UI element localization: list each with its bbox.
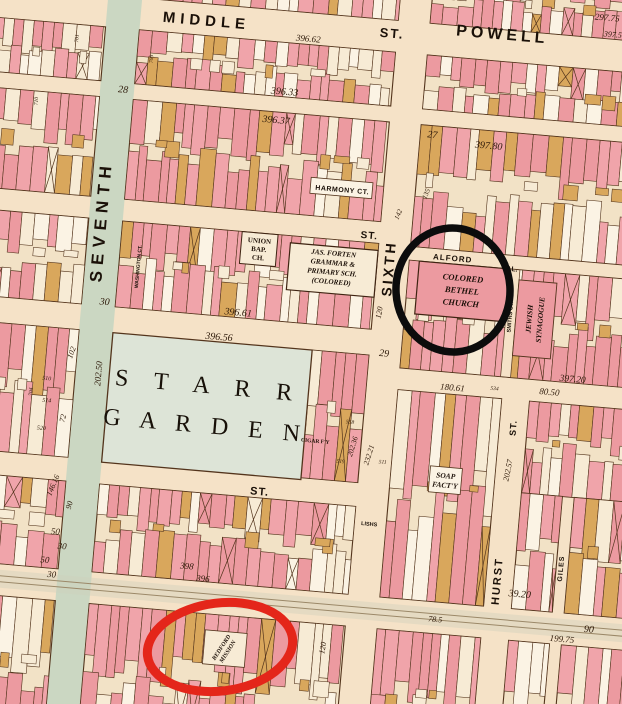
num-511-text: 511 [378, 459, 387, 466]
atlas-map-page: MIDDLEST.POWELLSEVENTHSIXTHHURSTST.ST.ST… [0, 0, 622, 704]
city-block [365, 629, 481, 704]
num-30-seventh-text: 30 [98, 296, 110, 308]
num-514-text: 514 [42, 397, 52, 405]
num-80-50-text: 80.50 [539, 386, 561, 398]
city-block [0, 86, 99, 196]
city-block [0, 319, 79, 457]
num-50-a-text: 50 [50, 526, 60, 537]
city-block [564, 498, 622, 620]
street-label-hurst-st-text: ST. [507, 419, 518, 436]
label-union-bap-line-3: CH. [252, 254, 265, 263]
num-396-text: 396 [195, 573, 211, 584]
num-534-text: 534 [490, 385, 499, 393]
num-39-20: 39.20 [507, 588, 531, 601]
num-710: 710 [33, 97, 40, 106]
street-label-st-mid-text: ST. [360, 230, 378, 242]
city-block [0, 17, 106, 81]
city-block [411, 125, 622, 269]
num-510: 510 [42, 376, 51, 383]
num-397-5: 397.5 [602, 29, 622, 40]
num-78-5: 78.5 [428, 614, 443, 624]
num-30-b: 30 [46, 569, 57, 580]
num-90-right-text: 90 [583, 624, 594, 636]
num-701-text: 701 [74, 34, 81, 43]
city-block [549, 645, 622, 704]
city-block [301, 350, 369, 482]
num-510-text: 510 [42, 376, 51, 383]
num-511: 511 [378, 459, 387, 466]
street-label-st-garden: ST. [250, 485, 270, 499]
num-39-20-text: 39.20 [507, 588, 531, 601]
synagogue-building [512, 280, 556, 359]
num-520-text: 520 [37, 425, 46, 432]
city-block [0, 590, 55, 704]
num-701: 701 [74, 34, 81, 43]
num-700-text: 700 [149, 54, 156, 63]
num-80-50: 80.50 [539, 386, 561, 398]
num-398-text: 398 [179, 560, 195, 571]
street-label-middle-st-text: ST. [379, 25, 405, 42]
num-30-a-text: 30 [56, 541, 67, 552]
num-396: 396 [195, 573, 211, 584]
atlas-map: MIDDLEST.POWELLSEVENTHSIXTHHURSTST.ST.ST… [0, 0, 622, 704]
city-block [522, 401, 622, 504]
num-29: 29 [379, 348, 390, 360]
city-block [380, 390, 502, 606]
num-519-text: 519 [336, 459, 345, 466]
num-28-text: 28 [118, 84, 129, 96]
num-90-right: 90 [583, 624, 594, 636]
num-30-b-text: 30 [46, 569, 57, 580]
num-700: 700 [149, 54, 156, 63]
num-534: 534 [490, 385, 499, 393]
num-50-a: 50 [50, 526, 60, 537]
num-558-text: 558 [346, 419, 355, 426]
num-78-5-text: 78.5 [428, 614, 443, 624]
num-30-seventh: 30 [98, 296, 110, 308]
num-30-a: 30 [56, 541, 67, 552]
num-558: 558 [346, 419, 355, 426]
num-520: 520 [37, 425, 46, 432]
num-704-text: 704 [27, 387, 35, 396]
num-704: 704 [27, 387, 35, 396]
num-398: 398 [179, 560, 195, 571]
street-label-st-garden-text: ST. [250, 485, 270, 499]
num-514: 514 [42, 397, 52, 405]
street-label-st-mid: ST. [360, 230, 378, 242]
num-50-b: 50 [40, 554, 50, 565]
street-label-hurst-st: ST. [507, 419, 518, 436]
num-28: 28 [118, 84, 129, 96]
num-397-5-text: 397.5 [602, 29, 622, 40]
num-50-b-text: 50 [40, 554, 50, 565]
num-519: 519 [336, 459, 345, 466]
street-label-middle-st: ST. [379, 25, 405, 42]
label-bethel-church: COLOREDBETHELCHURCH [440, 271, 484, 309]
num-29-text: 29 [379, 348, 390, 360]
city-block [0, 208, 89, 304]
num-710-text: 710 [33, 97, 40, 106]
